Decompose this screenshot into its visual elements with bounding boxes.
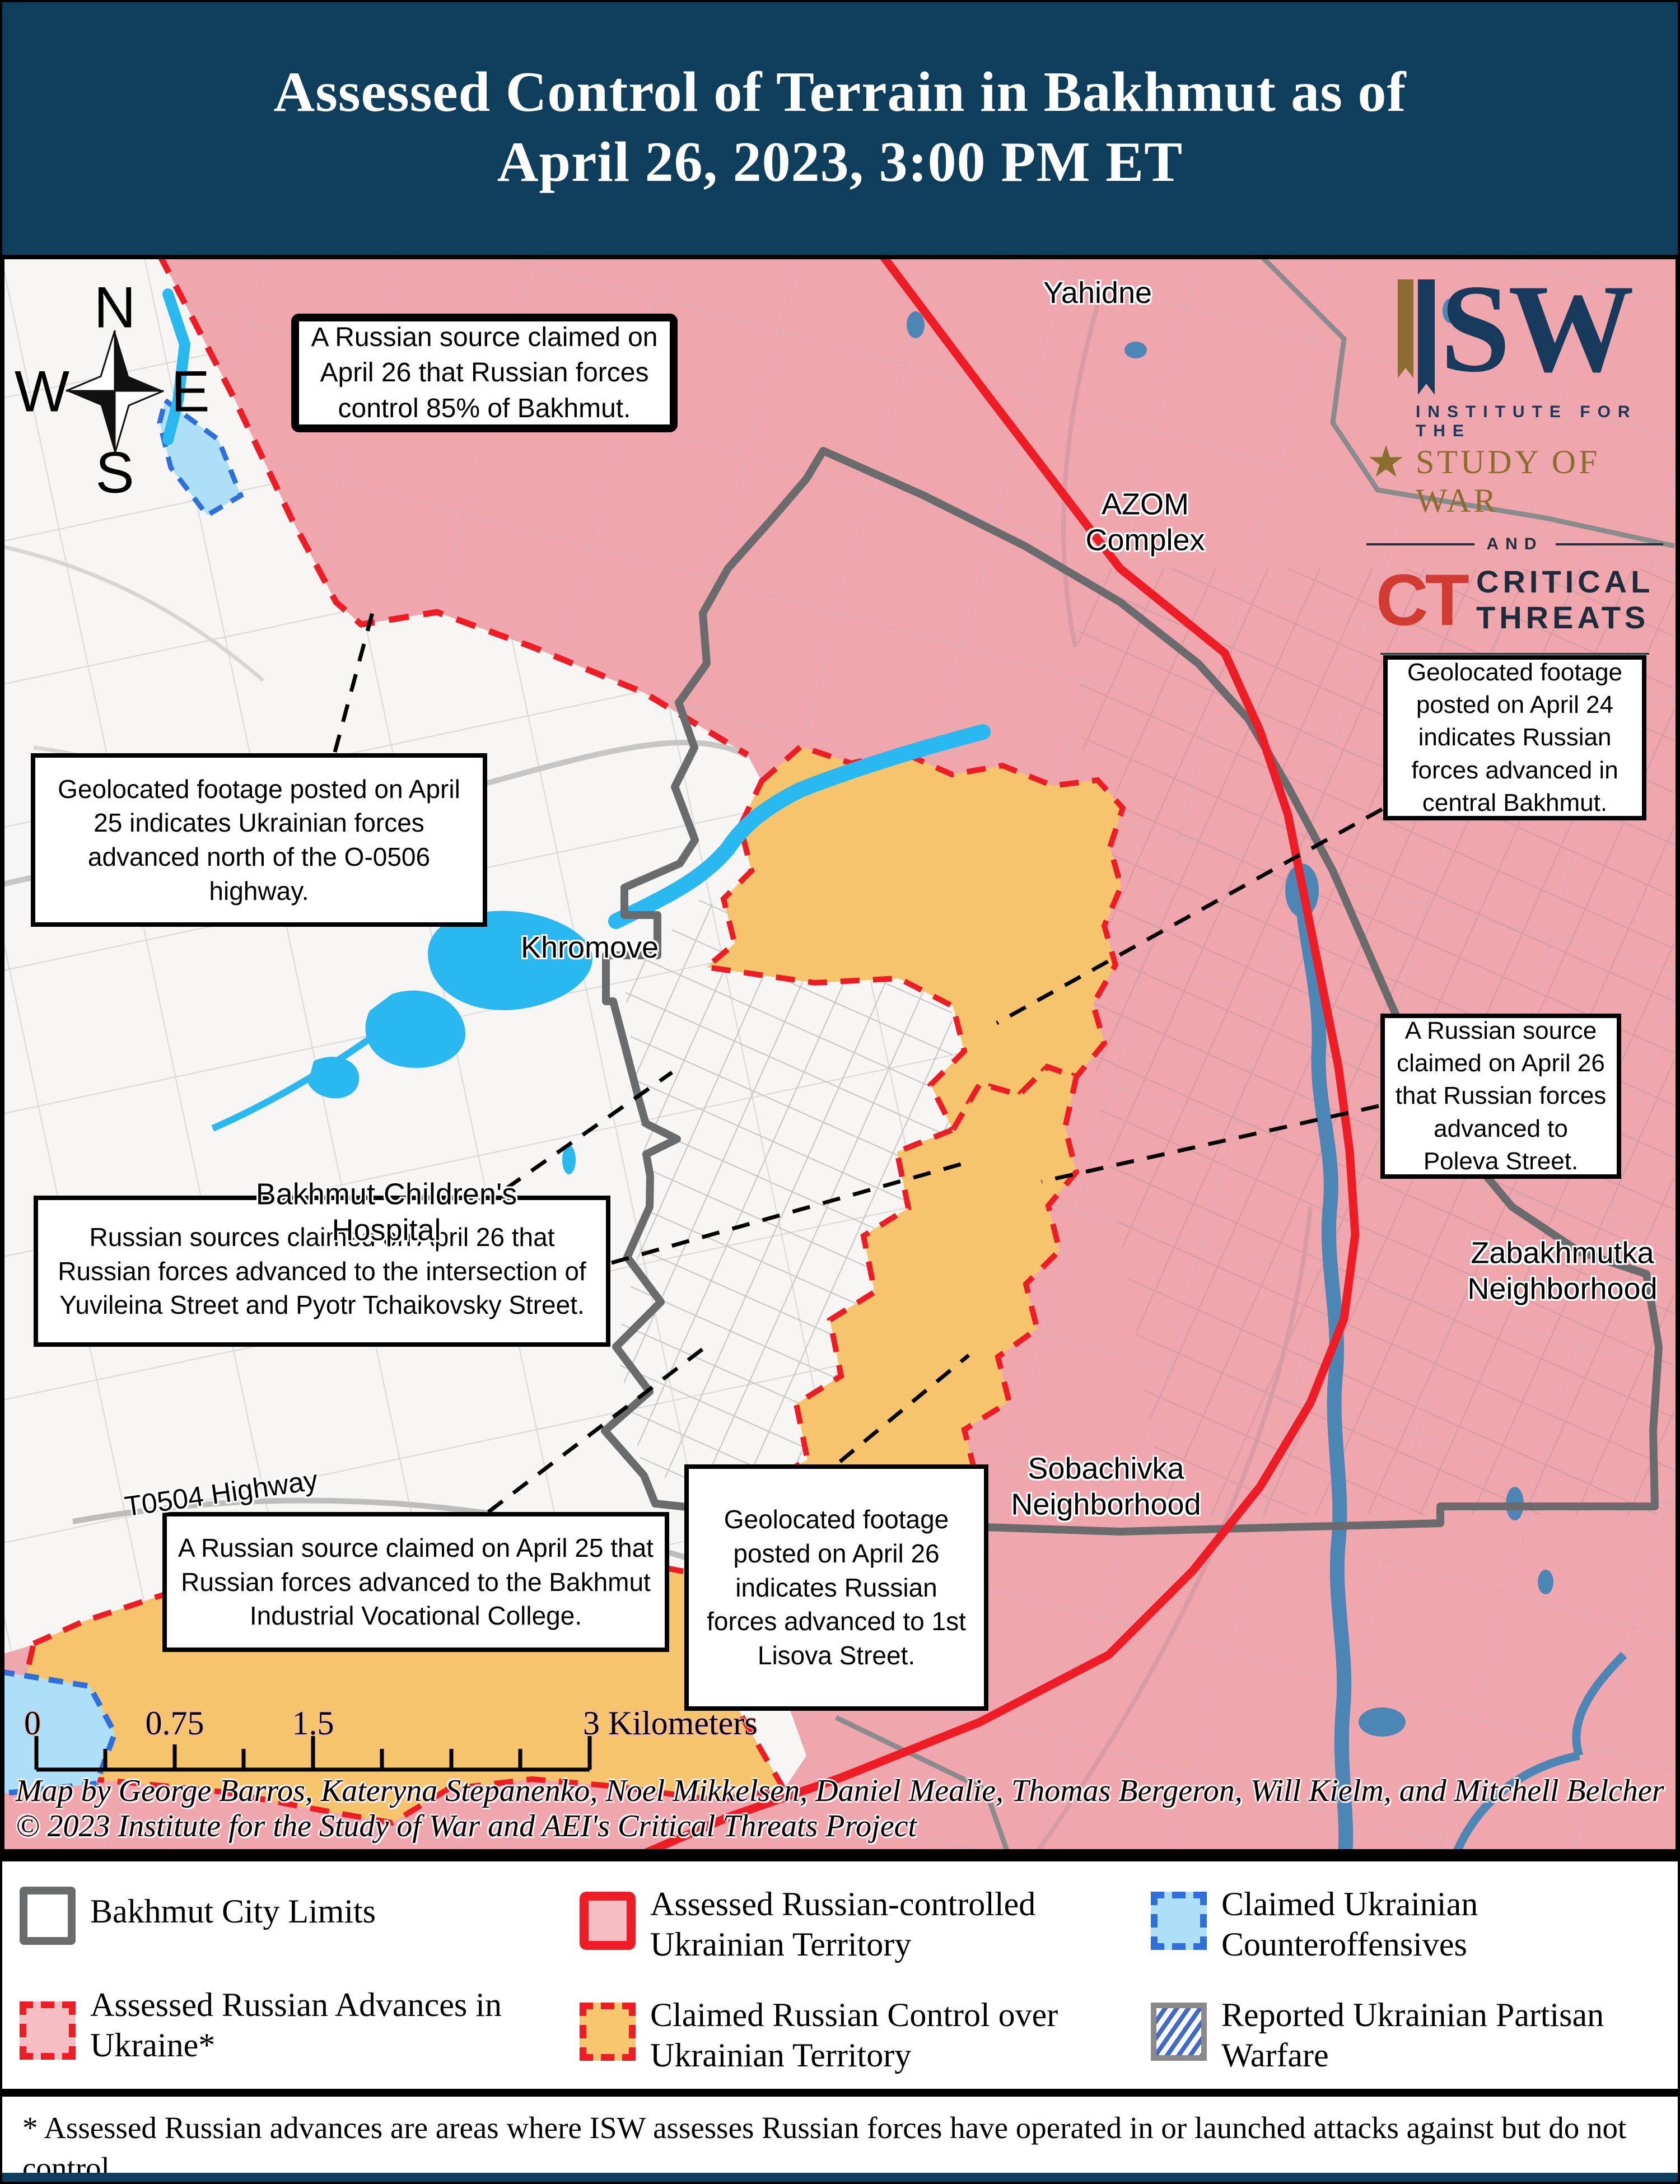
header: Assessed Control of Terrain in Bakhmut a…	[0, 0, 1680, 255]
bottom-navy-bar	[0, 2173, 1680, 2184]
ct-monogram: CT	[1376, 567, 1466, 633]
callout-poleva: A Russian source claimed on April 26 tha…	[1380, 1014, 1621, 1179]
callout-85-percent: A Russian source claimed on April 26 tha…	[291, 314, 678, 432]
label-yahidne: Yahidne	[1043, 276, 1152, 311]
legend-item-partisan-warfare: Reported Ukrainian Partisan Warfare	[1151, 1995, 1669, 2075]
legend: Bakhmut City Limits Assessed Russian Adv…	[0, 1854, 1680, 2089]
label-zabakhmutka: ZabakhmutkaNeighborhood	[1467, 1235, 1657, 1306]
compass-star-icon	[22, 286, 207, 479]
scale-15: 1.5	[292, 1704, 334, 1743]
institute-block: ★ INSTITUTE FOR THE STUDY OF WAR	[1366, 403, 1663, 520]
label-sobachivka: SobachivkaNeighborhood	[1011, 1451, 1201, 1522]
label-azom-complex: AZOMComplex	[1085, 487, 1205, 558]
label-khromove: Khromove	[521, 930, 659, 966]
critical-threats-block: CT CRITICAL THREATS	[1366, 564, 1663, 636]
scale-075: 0.75	[146, 1704, 204, 1743]
legend-item-russian-advances: Assessed Russian Advances in Ukraine*	[20, 1985, 538, 2065]
scale-3km: 3 Kilometers	[583, 1704, 758, 1743]
city-limits-swatch-icon	[20, 1887, 76, 1945]
legend-item-russian-controlled: Assessed Russian-controlled Ukrainian Te…	[580, 1884, 1109, 1964]
page-title-line1: Assessed Control of Terrain in Bakhmut a…	[274, 58, 1407, 127]
isw-bakhmut-map-page: Assessed Control of Terrain in Bakhmut a…	[0, 0, 1680, 2184]
threats-text: THREATS	[1476, 600, 1654, 636]
legend-item-claimed-russian: Claimed Russian Control over Ukrainian T…	[580, 1995, 1121, 2075]
gold-star-icon: ★	[1366, 440, 1406, 483]
and-text: AND	[1487, 535, 1543, 554]
pond-se-2	[1538, 1570, 1553, 1594]
and-divider: AND	[1366, 535, 1663, 554]
callout-lisova: Geolocated footage posted on April 26 in…	[684, 1464, 988, 1711]
study-of-war-text: STUDY OF WAR	[1416, 443, 1663, 520]
callout-vocational: A Russian source claimed on April 25 tha…	[162, 1512, 669, 1652]
russian-controlled-swatch-icon	[580, 1892, 636, 1950]
callout-central-bakhmut: Geolocated footage posted on April 24 in…	[1383, 655, 1646, 820]
isw-wordmark: SW	[1366, 272, 1663, 398]
isw-ribbon-icon	[1398, 279, 1437, 398]
isw-letters: SW	[1440, 272, 1632, 385]
legend-item-city-limits: Bakhmut City Limits	[20, 1887, 516, 1945]
russian-advances-swatch-icon	[20, 2001, 76, 2060]
ukr-counteroffensives-swatch-icon	[1151, 1892, 1207, 1950]
partisan-warfare-swatch-icon	[1151, 2003, 1207, 2061]
attribution: Map by George Barros, Kateryna Stepanenk…	[16, 1774, 1664, 1844]
footnote: * Assessed Russian advances are areas wh…	[0, 2089, 1680, 2173]
scale-0: 0	[24, 1704, 41, 1743]
critical-text: CRITICAL	[1476, 564, 1654, 600]
label-children-hospital: Bakhmut Children'sHospital	[256, 1177, 517, 1248]
pond-se-3	[1359, 1707, 1406, 1737]
map-area: N W E S SW ★ INSTITUTE FOR TH	[0, 255, 1680, 1854]
compass-rose: N W E S	[22, 286, 207, 479]
attribution-line2: © 2023 Institute for the Study of War an…	[16, 1809, 1664, 1844]
pond-north-2	[1124, 342, 1147, 358]
logo-divider-line	[1380, 653, 1649, 655]
pond-north-1	[907, 311, 925, 338]
page-title-line2: April 26, 2023, 3:00 PM ET	[497, 128, 1183, 197]
legend-item-ukr-counteroffensives: Claimed Ukrainian Counteroffensives	[1151, 1884, 1658, 1964]
claimed-russian-swatch-icon	[580, 2003, 636, 2061]
attribution-line1: Map by George Barros, Kateryna Stepanenk…	[16, 1774, 1664, 1809]
institute-for-the-text: INSTITUTE FOR THE	[1416, 403, 1663, 441]
callout-o0506: Geolocated footage posted on April 25 in…	[31, 753, 487, 927]
